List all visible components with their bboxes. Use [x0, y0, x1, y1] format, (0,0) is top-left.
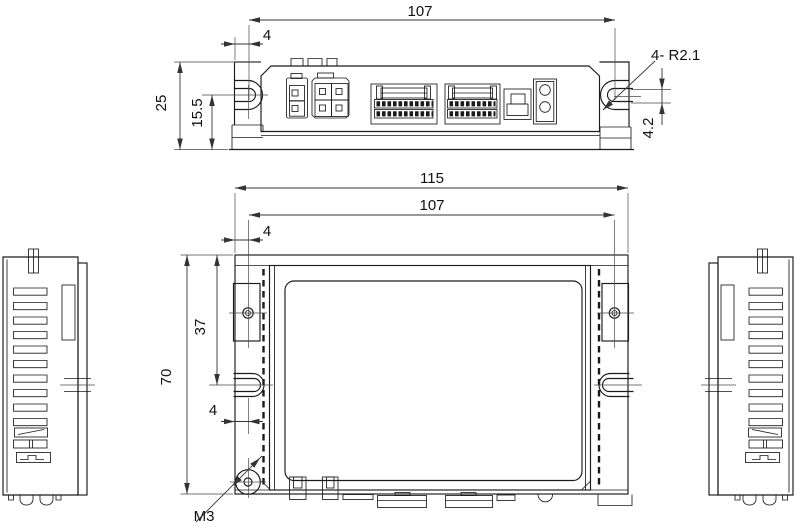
mounting-tab-right — [602, 284, 629, 342]
connector-latch — [318, 73, 334, 78]
header-connector-right — [445, 84, 500, 124]
dim-label-top-slot-height: 15.5 — [189, 98, 206, 127]
front-view-outline — [235, 255, 628, 494]
front-view-edge-bands — [235, 266, 628, 491]
dim-label-top-height: 25 — [153, 95, 170, 112]
bottom-foot-bump — [538, 495, 553, 502]
aux-connector — [504, 89, 531, 120]
dim-label-top-offset: 4 — [263, 27, 271, 44]
dim-mount-offset: 4 — [221, 223, 271, 243]
dim-label-overall-height: 70 — [158, 369, 175, 386]
label-corner-radius: 4- R2.1 — [651, 47, 700, 64]
dim-overall-height: 70 — [158, 255, 233, 494]
top-ear-edge — [29, 249, 39, 273]
left-side-view — [3, 249, 95, 505]
mounting-tab-left — [234, 284, 261, 342]
front-cover-inner-edges — [275, 266, 586, 491]
motor-connector-4pin — [312, 73, 349, 118]
note-corner-radius: 4- R2.1 — [603, 47, 700, 110]
pin — [292, 90, 298, 96]
top-view-mount-ear-right — [600, 62, 634, 150]
dim-top-height: 25 — [153, 62, 261, 150]
vent-slots-special — [14, 428, 51, 463]
front-view — [209, 220, 642, 508]
dim-top-offset: 4 — [221, 27, 271, 60]
centerlines — [209, 220, 642, 498]
drawing-canvas: 107 4 25 15.5 4- R2.1 4.2 115 — [0, 0, 800, 532]
dim-label-overall-width: 115 — [420, 170, 444, 187]
pin — [292, 106, 298, 112]
cover-corner-chamfers — [262, 481, 591, 490]
pin — [320, 89, 326, 95]
dim-label-top-span: 107 — [407, 3, 432, 20]
dim-bottom-offset: 4 — [209, 402, 263, 424]
front-cover — [270, 266, 591, 491]
note-thread: M3 — [194, 456, 262, 525]
pin — [336, 89, 342, 95]
header-connector-left — [371, 84, 437, 124]
dim-label-slot-width: 4.2 — [640, 118, 657, 139]
pin — [336, 105, 342, 111]
dim-label-mount-span: 107 — [419, 197, 444, 214]
top-view-latch-tabs — [291, 59, 337, 67]
mount-bracket-edge — [62, 285, 75, 340]
indicator-hole — [540, 102, 551, 113]
dim-label-hole-drop: 37 — [192, 319, 209, 336]
front-panel — [285, 281, 582, 481]
label-thread: M3 — [194, 508, 215, 525]
dim-hole-drop: 37 — [192, 255, 220, 385]
top-view-mount-ear-left — [232, 62, 263, 150]
top-view — [229, 59, 634, 150]
vent-slots — [14, 288, 48, 426]
technical-drawing: 107 4 25 15.5 4- R2.1 4.2 115 — [0, 0, 800, 532]
dim-label-bottom-offset: 4 — [209, 402, 217, 419]
base-plate-edge — [78, 263, 87, 495]
dim-slot-width: 4.2 — [614, 68, 671, 138]
bottom-right-step — [598, 495, 632, 506]
power-connector-2pin — [287, 74, 308, 119]
bottom-connectors — [343, 493, 632, 508]
dim-label-mount-offset: 4 — [263, 223, 271, 240]
right-side-view — [701, 249, 793, 505]
pin — [320, 105, 326, 111]
feet — [9, 495, 62, 505]
dim-top-slot-height: 15.5 — [189, 85, 268, 150]
indicator-connector — [534, 79, 557, 124]
dim-mount-span: 107 — [249, 197, 615, 218]
indicator-hole — [540, 85, 551, 96]
